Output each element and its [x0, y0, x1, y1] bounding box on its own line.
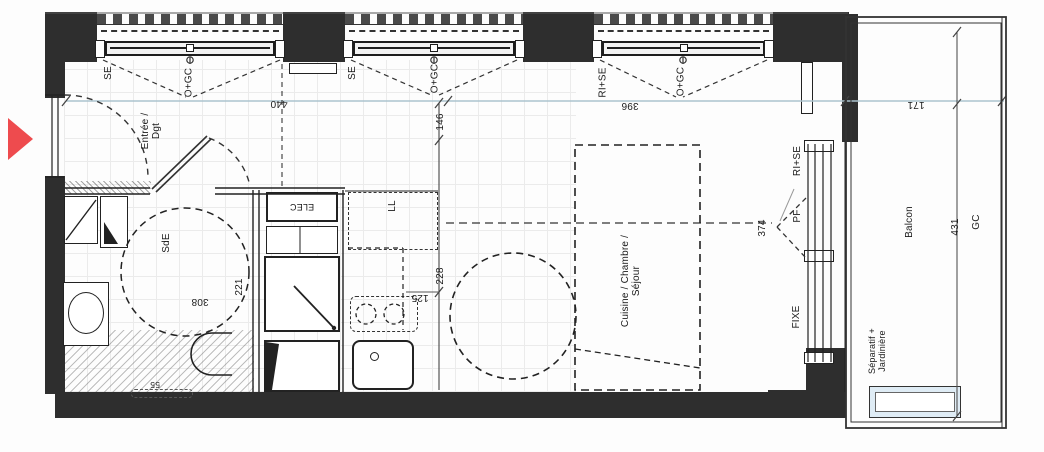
dim-228: 228 — [435, 260, 447, 292]
dim-431: 431 — [950, 211, 962, 243]
washer-label: LL — [387, 194, 399, 218]
bay-type-label: RI+SE — [792, 137, 804, 185]
room-entrance-label: Entrée / Dgt — [138, 102, 164, 160]
dim-396: 396 — [612, 99, 648, 111]
fixture-lines — [66, 145, 700, 390]
partition-lines — [45, 64, 438, 392]
dim-221: 221 — [234, 271, 246, 303]
dim-440: 440 — [261, 97, 297, 109]
window3-type-label: RI+SE — [597, 58, 610, 108]
window1-opening-label: O+GC — [183, 60, 196, 106]
room-main-label: Cuisine / Chambre / Séjour — [618, 225, 644, 337]
dim-146: 146 — [435, 106, 447, 138]
dim-308: 308 — [183, 295, 217, 307]
window3-opening-label: O+GC — [675, 59, 688, 105]
duct-label: GC — [970, 208, 984, 236]
window2-opening-label: O+GC — [429, 56, 442, 102]
dim-55: 55 — [143, 379, 167, 389]
room-shower-label: SdE — [160, 226, 174, 260]
separator-label: Séparatif + Jardinière — [865, 318, 889, 384]
elec-label: ELEC — [280, 200, 324, 214]
floor-plan: SE O+GC SE O+GC RI+SE O+GC 440 396 171 1… — [0, 0, 1044, 452]
window2-type-label: SE — [346, 53, 360, 93]
dim-171: 171 — [898, 98, 934, 110]
room-balcony-label: Balcon — [903, 196, 917, 248]
dim-374: 374 — [757, 212, 769, 244]
bay-glazing-lines — [808, 142, 845, 392]
bay-door-label: PF — [792, 204, 804, 228]
bay-fixed-label: FIXE — [791, 299, 803, 335]
dim-125: 125 — [405, 292, 435, 303]
window1-type-label: SE — [102, 53, 116, 93]
